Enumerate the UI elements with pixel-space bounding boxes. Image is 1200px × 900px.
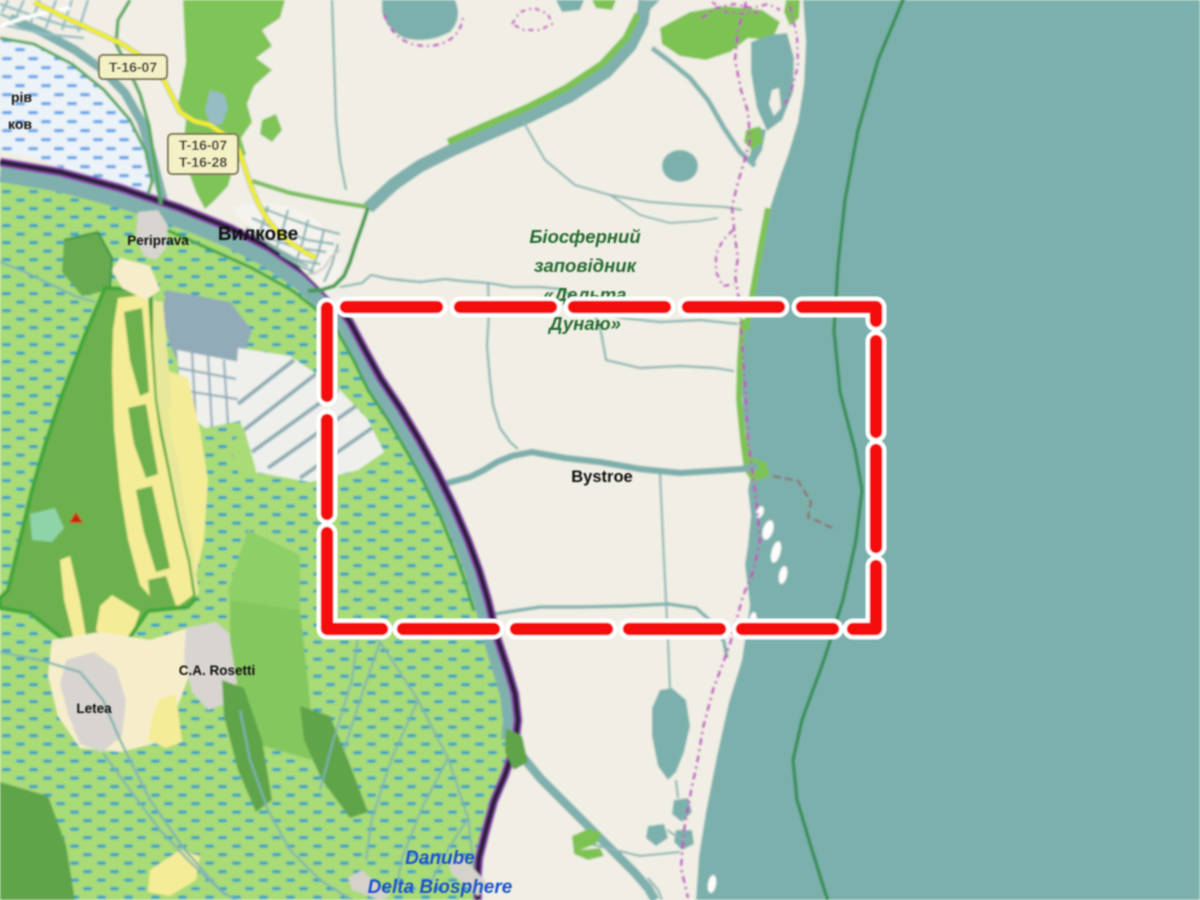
svg-text:T-16-28: T-16-28 xyxy=(179,154,227,170)
svg-text:T-16-07: T-16-07 xyxy=(179,137,227,153)
svg-text:Letea: Letea xyxy=(76,701,112,716)
svg-text:Danube: Danube xyxy=(405,848,475,869)
svg-text:Біосферний: Біосферний xyxy=(529,226,640,247)
svg-text:Delta Biosphere: Delta Biosphere xyxy=(368,877,513,898)
svg-text:Bystroe: Bystroe xyxy=(571,468,632,486)
svg-text:Вилкове: Вилкове xyxy=(218,224,298,245)
svg-text:заповідник: заповідник xyxy=(534,255,638,276)
svg-text:ков: ков xyxy=(8,116,32,132)
svg-text:Periprava: Periprava xyxy=(127,233,189,248)
svg-text:T-16-07: T-16-07 xyxy=(109,59,157,75)
svg-text:рів: рів xyxy=(11,89,32,105)
svg-text:C.A. Rosetti: C.A. Rosetti xyxy=(179,663,256,678)
